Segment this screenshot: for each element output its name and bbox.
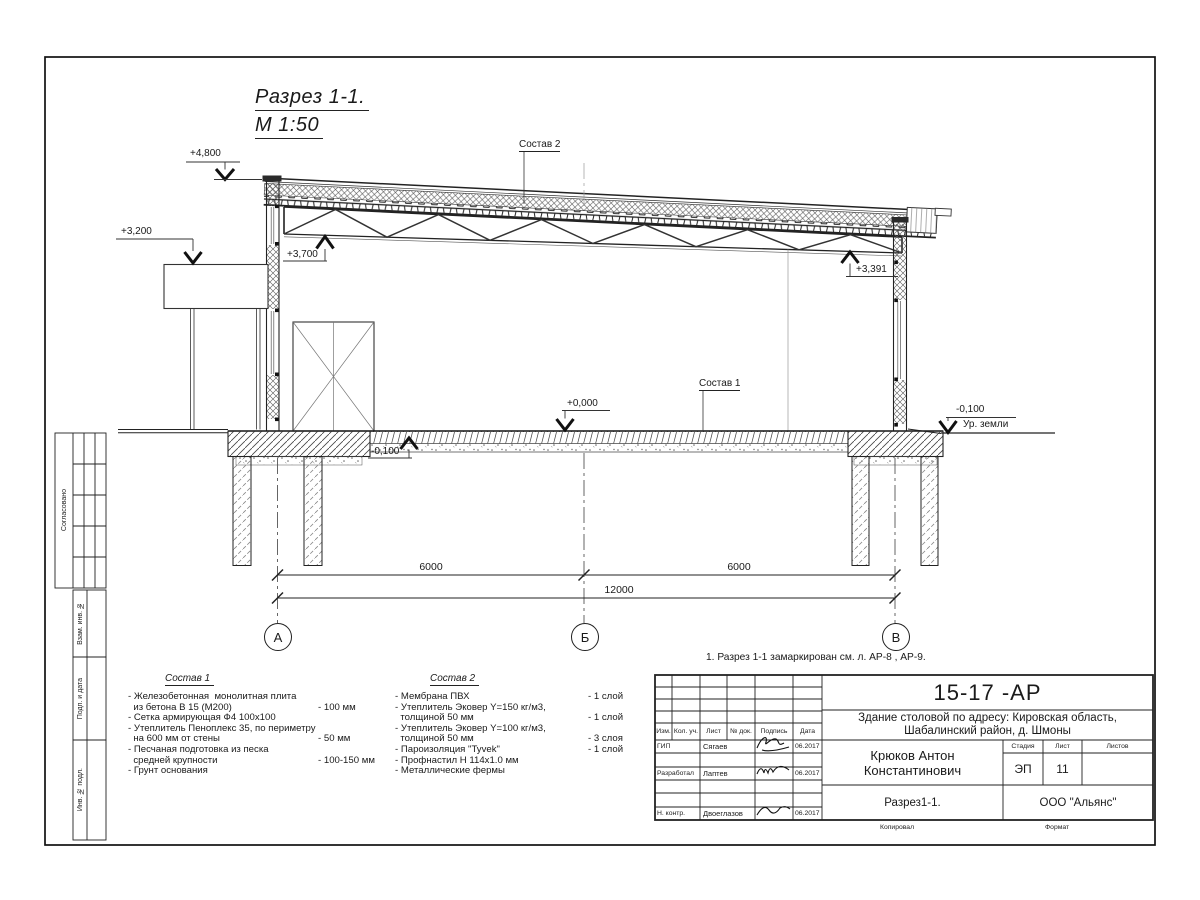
- list-item: - Мембрана ПВХ- 1 слой: [395, 692, 645, 703]
- leaders: [524, 152, 703, 431]
- axis-letter-b: Б: [581, 630, 590, 645]
- drawing-sheet: Разрез 1-1. М 1:50 Состав 2 Состав 1 +4,…: [0, 0, 1200, 900]
- dim-span-total: 12000: [594, 584, 644, 596]
- author-name: Крюков Антон Константинович: [822, 740, 1003, 785]
- date-nkontr: 06.2017: [795, 810, 820, 817]
- list-item: - Пароизоляция "Tyvek"- 1 слой: [395, 745, 645, 756]
- elevation-3200: +3,200: [121, 226, 152, 237]
- stage-value: ЭП: [1003, 753, 1043, 785]
- scale-label: М 1:50: [255, 114, 323, 139]
- dim-span-left: 6000: [406, 561, 456, 573]
- sheets-label: Листов: [1082, 740, 1153, 753]
- col-data: Дата: [793, 723, 822, 740]
- sidebar-inv-podl: Инв. № подл.: [73, 740, 87, 840]
- format-label: Формат: [1045, 824, 1069, 831]
- sheet-label: Лист: [1043, 740, 1082, 753]
- list-item: - Песчаная подготовка из песка: [128, 745, 388, 756]
- copied-label: Копировал: [880, 824, 914, 831]
- list-item: - Железобетонная монолитная плита: [128, 692, 388, 703]
- date-gip: 06.2017: [795, 743, 820, 750]
- company-name: ООО "Альянс": [1003, 785, 1153, 820]
- page-title: Разрез 1-1. М 1:50: [255, 86, 369, 139]
- role-nkontr: Н. контр.: [657, 810, 685, 817]
- role-gip: ГИП: [657, 743, 670, 750]
- role-razrabotal: Разработал: [657, 770, 694, 777]
- dimension-lines: [272, 570, 901, 604]
- sostav1-heading: Состав 1: [165, 668, 214, 686]
- roof: [264, 176, 952, 239]
- col-izm: Изм.: [655, 723, 672, 740]
- axis-letter-v: В: [892, 630, 901, 645]
- sostav1-list: - Железобетонная монолитная плита из бет…: [128, 692, 388, 777]
- col-list: Лист: [700, 723, 727, 740]
- list-item: - Металлические фермы: [395, 766, 645, 777]
- sostav2-list: - Мембрана ПВХ- 1 слой - Утеплитель Эков…: [395, 692, 645, 777]
- project-name: Здание столовой по адресу: Кировская обл…: [822, 710, 1153, 740]
- canopy: [164, 265, 268, 430]
- sidebar-vzam-inv: Взам. инв. №: [73, 590, 87, 657]
- name-nkontr: Двоеглазов: [703, 809, 743, 818]
- elevation-3391: +3,391: [856, 264, 887, 275]
- sidebar-soglasovano: Согласовано: [55, 433, 73, 588]
- drawing-note: 1. Разрез 1-1 замаркирован см. л. АР-8 ,…: [706, 652, 926, 663]
- elevation-0000: +0,000: [567, 398, 598, 409]
- name-gip: Сягаев: [703, 742, 727, 751]
- doc-code: 15-17 -АР: [822, 675, 1153, 710]
- signature-icon: [754, 800, 792, 820]
- axis-bubble-v: В: [882, 623, 910, 651]
- section-title: Разрез 1-1.: [255, 86, 369, 111]
- right-wall: [892, 217, 909, 431]
- col-ndok: № док.: [727, 723, 755, 740]
- elevation-4800: +4,800: [190, 148, 221, 159]
- list-item: - Грунт основания: [128, 766, 388, 777]
- sheet-value: 11: [1043, 753, 1082, 785]
- sheets-value: [1082, 753, 1153, 785]
- sheet-title: Разрез1-1.: [822, 785, 1003, 820]
- col-kol: Кол. уч.: [672, 723, 700, 740]
- dim-span-right: 6000: [714, 561, 764, 573]
- elevation-3700: +3,700: [287, 249, 318, 260]
- ground-level-label: Ур. земли: [963, 419, 1008, 430]
- name-razrabotal: Лаптев: [703, 769, 728, 778]
- date-razrabotal: 06.2017: [795, 770, 820, 777]
- elevation-m100-right: -0,100: [956, 404, 984, 415]
- signature-icon: [754, 734, 792, 754]
- signature-icon: [754, 760, 792, 780]
- axis-bubble-b: Б: [571, 623, 599, 651]
- sostav2-heading: Состав 2: [430, 668, 479, 686]
- callout-sostav1: Состав 1: [699, 378, 740, 391]
- door: [293, 322, 374, 431]
- stage-label: Стадия: [1003, 740, 1043, 753]
- axis-letter-a: А: [274, 630, 283, 645]
- elevation-m100-left: -0,100: [371, 446, 399, 457]
- axis-bubble-a: А: [264, 623, 292, 651]
- sidebar-podp-data: Подп. и дата: [73, 657, 87, 740]
- callout-sostav2: Состав 2: [519, 139, 560, 152]
